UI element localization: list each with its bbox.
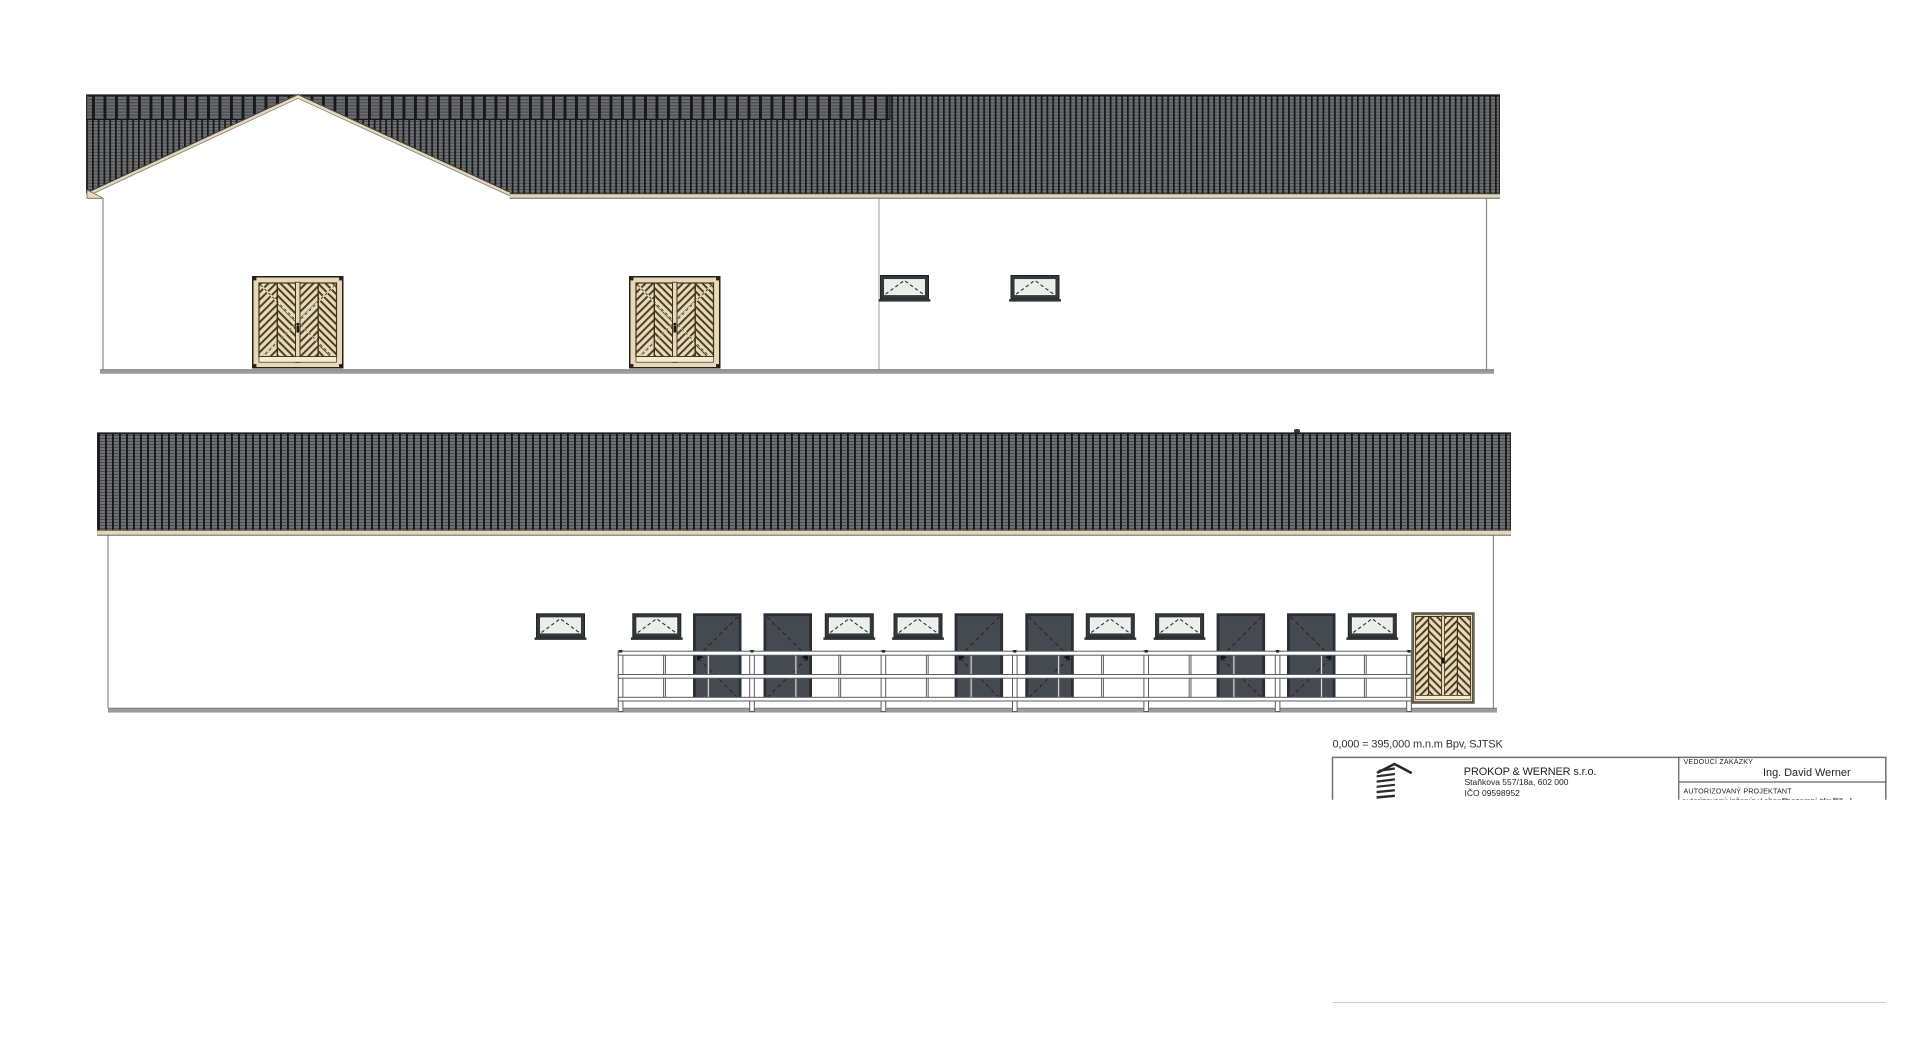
svg-text:AUTORIZOVANÝ PROJEKTANT: AUTORIZOVANÝ PROJEKTANT	[1684, 787, 1793, 796]
svg-text:Staňkova 557/18a, 602 000: Staňkova 557/18a, 602 000	[1465, 777, 1569, 787]
svg-text:IČO 09598952: IČO 09598952	[1465, 788, 1521, 798]
svg-text:Ing. David Werner: Ing. David Werner	[1763, 767, 1851, 779]
svg-text:autorizovaný inženýr v oboru p: autorizovaný inženýr v oboru pozemní sta…	[1682, 797, 1843, 806]
svg-text:VEDOUCÍ ZAKÁZKY: VEDOUCÍ ZAKÁZKY	[1684, 757, 1754, 766]
svg-text:0,000 = 395,000 m.n.m Bpv, SJT: 0,000 = 395,000 m.n.m Bpv, SJTSK	[1333, 739, 1504, 751]
